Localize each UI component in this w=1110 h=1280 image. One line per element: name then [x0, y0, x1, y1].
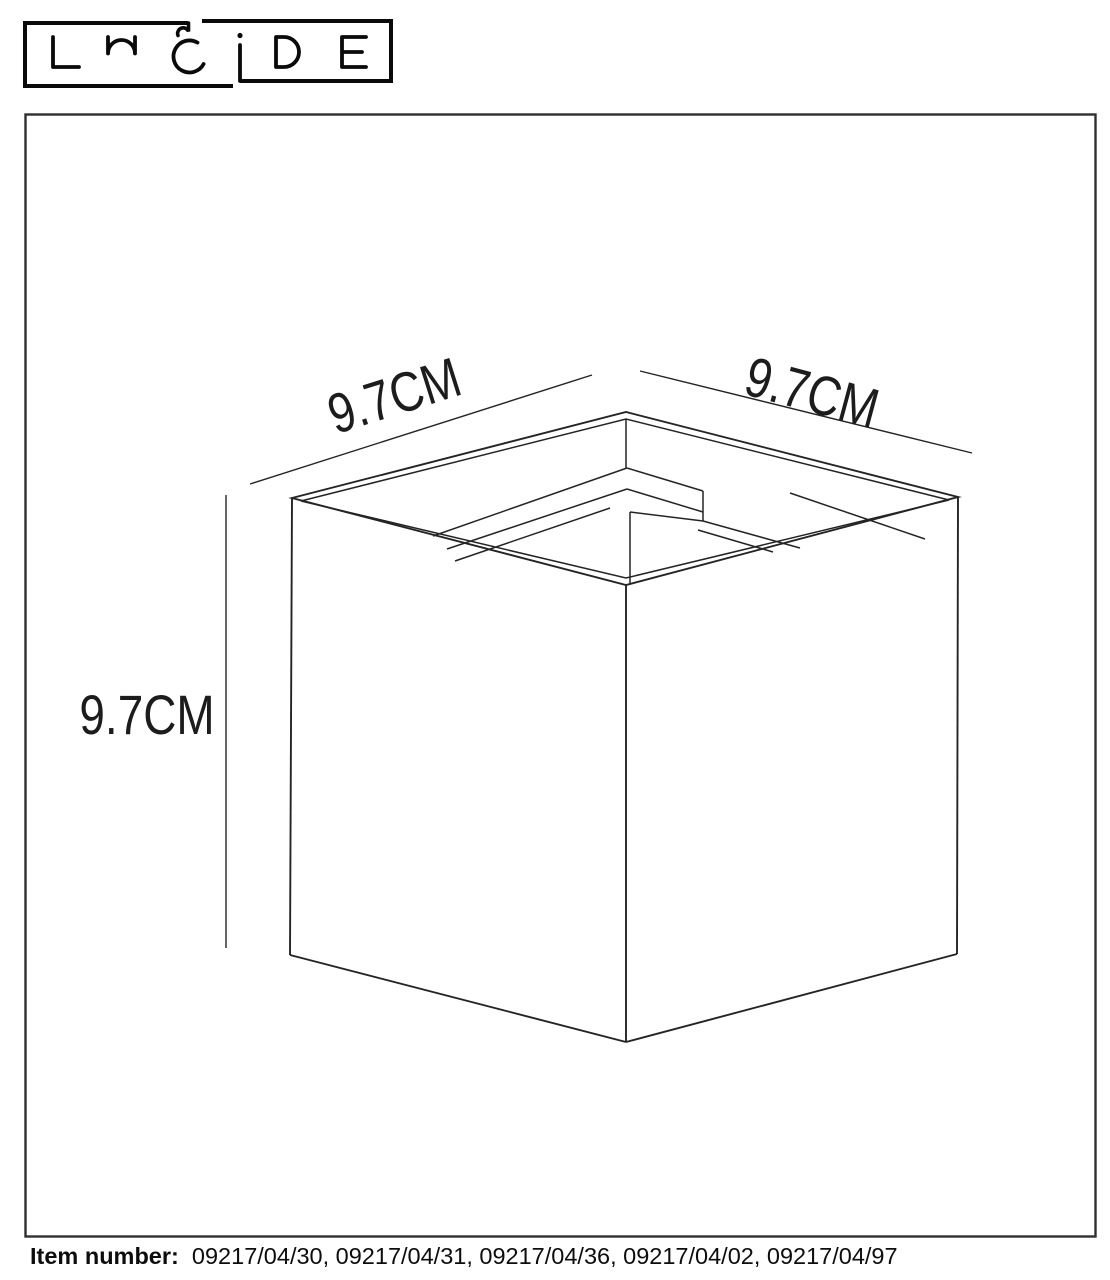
product-dimension-sheet: 9.7CM 9.7CM 9.7CM Item number: 09217/04/…: [0, 0, 1110, 1280]
dimension-diagram: 9.7CM 9.7CM 9.7CM: [0, 0, 1110, 1280]
cube-top-rim: [292, 412, 958, 585]
logo-letters: [53, 33, 366, 81]
dimension-lines: [226, 371, 972, 948]
item-number-label: Item number:: [30, 1243, 179, 1269]
cube-drawing: [290, 412, 958, 1042]
item-number-values: 09217/04/30, 09217/04/31, 09217/04/36, 0…: [192, 1243, 898, 1269]
page-border: [26, 115, 1096, 1237]
dimension-label-top-left: 9.7CM: [320, 346, 468, 446]
lucide-logo: [25, 21, 391, 86]
item-number-row: Item number: 09217/04/30, 09217/04/31, 0…: [30, 1243, 898, 1270]
dimension-label-height: 9.7CM: [79, 684, 214, 746]
cube-body-edges: [290, 497, 958, 1042]
dimension-label-top-right: 9.7CM: [739, 345, 886, 440]
cube-interior-lines: [433, 419, 925, 584]
logo-box: [25, 21, 391, 86]
